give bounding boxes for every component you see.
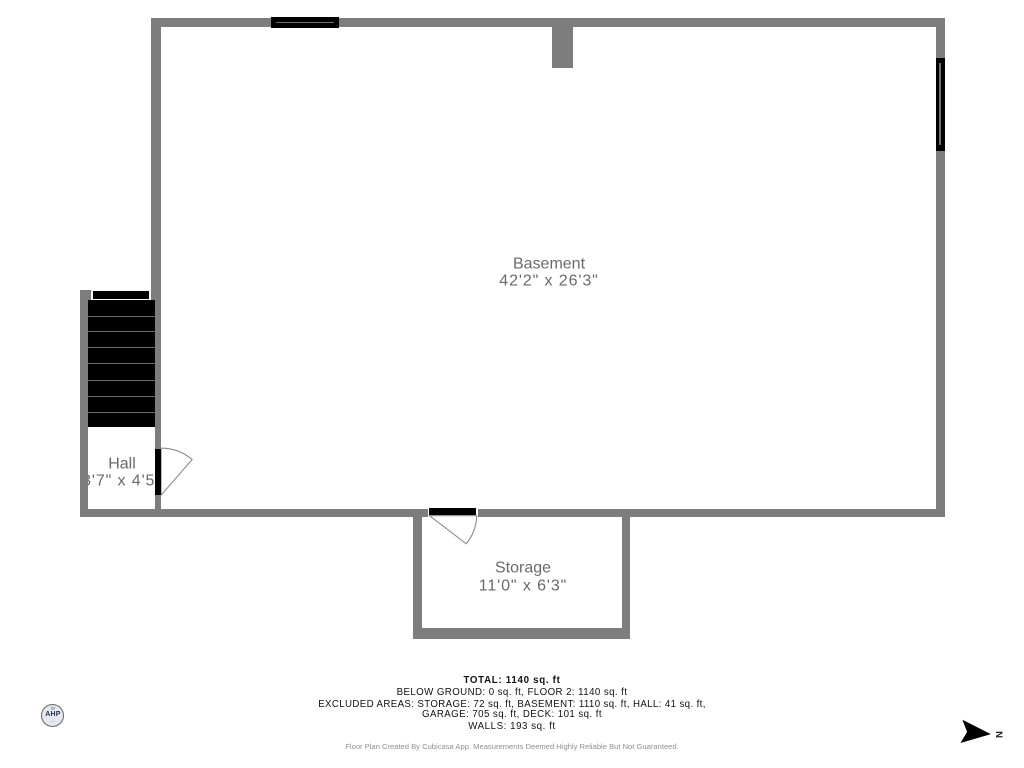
svg-text:N: N <box>993 731 1004 738</box>
